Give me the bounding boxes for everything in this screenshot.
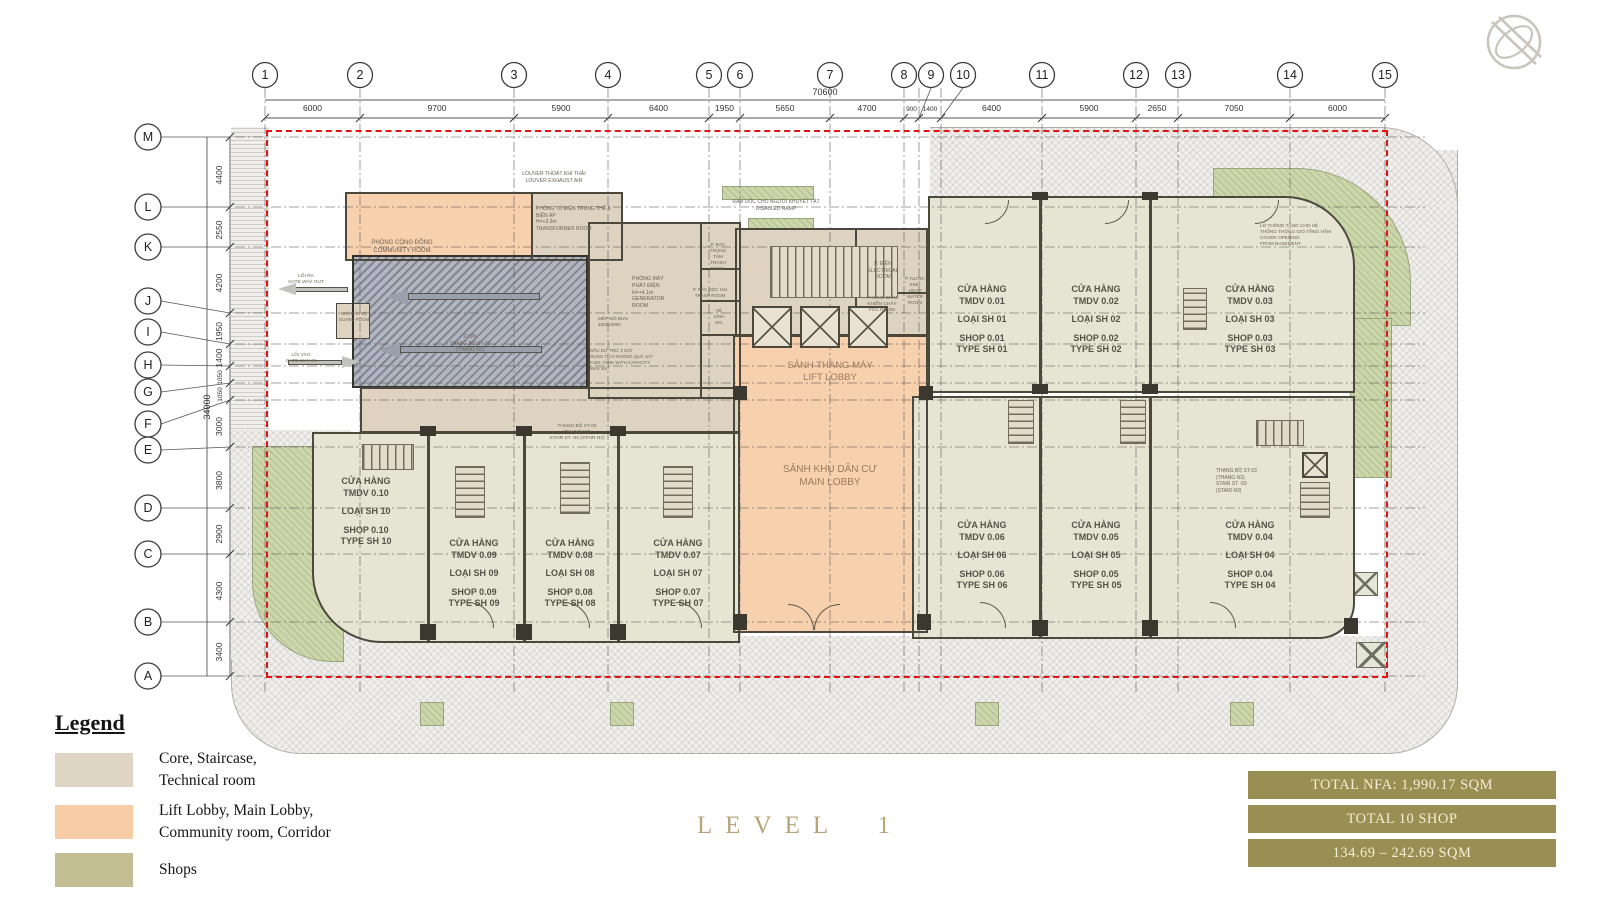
- grid-line: [161, 447, 230, 450]
- dimension-text: 3000: [214, 417, 224, 436]
- grid-bubble-row-label: K: [144, 240, 153, 254]
- legend-item-core: Core, Staircase, Technical room: [55, 748, 331, 791]
- dimension-text: 4300: [214, 581, 224, 600]
- dimension-text: 34000: [202, 394, 212, 419]
- grid-bubble-column-label: 12: [1129, 68, 1143, 82]
- dimension-text: 7050: [1225, 103, 1244, 113]
- grid-bubble-column-label: 2: [357, 68, 364, 82]
- grid-bubble-row-label: H: [143, 358, 152, 372]
- legend: Legend Core, Staircase, Technical room L…: [55, 710, 331, 896]
- site-boundary: [266, 130, 1388, 678]
- grid-bubble-row-label: B: [144, 615, 152, 629]
- grid-bubble-column-label: 3: [511, 68, 518, 82]
- grid-bubble-column-label: 13: [1171, 68, 1185, 82]
- dimension-text: 70600: [812, 87, 837, 97]
- dimension-text: 1400: [923, 106, 938, 113]
- grid-bubble-row-label: G: [143, 385, 153, 399]
- dimension-text: 3800: [214, 471, 224, 490]
- legend-swatch-shops: [55, 853, 133, 887]
- dimension-text: 6400: [982, 103, 1001, 113]
- grid-bubble-row-label: J: [145, 294, 151, 308]
- legend-swatch-core: [55, 753, 133, 787]
- floor-plan-sheet: LOUVER THOÁT KHÍ THẢILOUVER EXHAUST AIRP…: [0, 0, 1600, 899]
- dimension-text: 4200: [214, 273, 224, 292]
- grid-line: [161, 301, 230, 313]
- total-nfa-box: TOTAL NFA: 1,990.17 SQM: [1248, 771, 1556, 799]
- grid-bubble-column-label: 9: [928, 68, 935, 82]
- legend-item-shops: Shops: [55, 853, 331, 887]
- dimension-text: 5650: [776, 103, 795, 113]
- dimension-text: 4400: [214, 165, 224, 184]
- grid-bubble-row-label: L: [145, 200, 152, 214]
- dimension-text: 9700: [428, 103, 447, 113]
- dimension-text: 1950: [715, 103, 734, 113]
- legend-label-lobby: Lift Lobby, Main Lobby, Community room, …: [159, 800, 331, 843]
- legend-item-lobby: Lift Lobby, Main Lobby, Community room, …: [55, 800, 331, 843]
- grid-bubble-column-label: 1: [262, 68, 269, 82]
- grid-bubble-column-label: 10: [956, 68, 970, 82]
- dimension-text: 5900: [1080, 103, 1099, 113]
- grid-bubble-row-label: I: [146, 325, 149, 339]
- dimension-text: 4700: [858, 103, 877, 113]
- dimension-text: 2650: [1148, 103, 1167, 113]
- legend-heading: Legend: [55, 710, 331, 736]
- grid-line: [919, 88, 931, 118]
- grid-bubble-column-label: 11: [1036, 68, 1049, 82]
- dimension-text: 1050: [217, 370, 224, 385]
- grid-bubble-column-label: 5: [706, 68, 713, 82]
- dimension-text: 2550: [214, 220, 224, 239]
- total-shop-box: TOTAL 10 SHOP: [1248, 805, 1556, 833]
- grid-bubble-row-label: C: [143, 547, 152, 561]
- dimension-text: 6400: [649, 103, 668, 113]
- shop-range-text: 134.69 – 242.69 SQM: [1333, 845, 1472, 862]
- grid-bubble-column-label: 8: [901, 68, 908, 82]
- dimension-text: 2900: [214, 524, 224, 543]
- total-shop-text: TOTAL 10 SHOP: [1347, 811, 1458, 828]
- grid-bubble-row-label: F: [144, 417, 152, 431]
- grid-bubble-column-label: 4: [605, 68, 612, 82]
- grid-bubble-column-label: 15: [1378, 68, 1392, 82]
- dimension-text: 3400: [214, 642, 224, 661]
- shop-range-box: 134.69 – 242.69 SQM: [1248, 839, 1556, 867]
- grid-bubble-row-label: M: [143, 130, 153, 144]
- grid-bubble-row-label: D: [143, 501, 152, 515]
- grid-bubble-column-label: 14: [1283, 68, 1297, 82]
- summary-panel: TOTAL NFA: 1,990.17 SQM TOTAL 10 SHOP 13…: [1248, 771, 1556, 873]
- level-title: LEVEL 1: [560, 812, 1040, 840]
- grid-bubble-row-label: E: [144, 443, 152, 457]
- dimension-text: 6000: [1328, 103, 1347, 113]
- grid-bubble-column-label: 7: [827, 68, 834, 82]
- legend-swatch-lobby: [55, 805, 133, 839]
- brand-logo-icon: [1478, 8, 1548, 78]
- dimension-text: 1950: [214, 322, 224, 341]
- dimension-text: 1050: [217, 387, 224, 402]
- grid-bubble-row-label: A: [144, 669, 153, 683]
- total-nfa-text: TOTAL NFA: 1,990.17 SQM: [1311, 777, 1493, 794]
- dimension-text: 900: [906, 106, 917, 113]
- grid-line: [941, 88, 963, 118]
- dimension-text: 5900: [552, 103, 571, 113]
- legend-label-shops: Shops: [159, 859, 197, 881]
- dimension-text: 6000: [303, 103, 322, 113]
- dimension-text: 1400: [214, 348, 224, 367]
- grid-bubble-column-label: 6: [737, 68, 744, 82]
- legend-label-core: Core, Staircase, Technical room: [159, 748, 257, 791]
